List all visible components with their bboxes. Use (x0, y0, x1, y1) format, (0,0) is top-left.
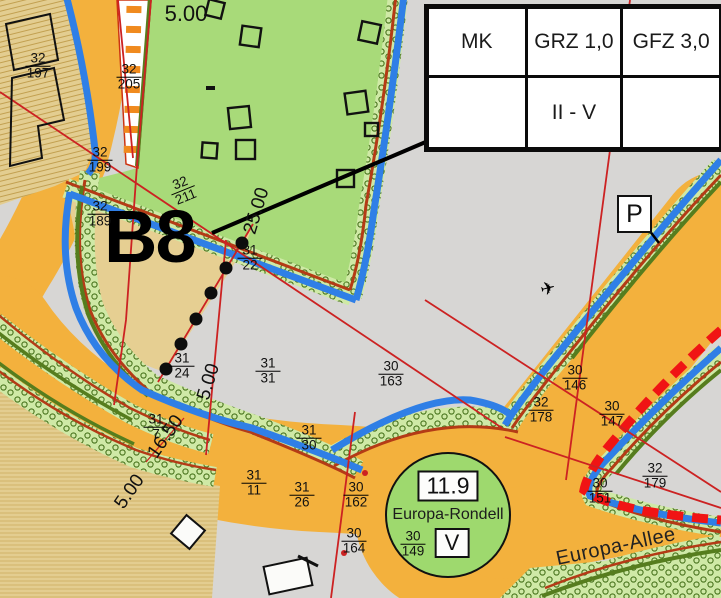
parcel-numerator: 32 (642, 462, 667, 477)
parcel-numerator: 30 (341, 527, 366, 542)
parcel-denominator: 205 (116, 78, 141, 92)
parcel-numerator: 32 (116, 63, 141, 78)
parcel-denominator: 164 (341, 542, 366, 556)
parcel-label: 30151 (587, 477, 612, 506)
aircraft-symbol: ✈ (538, 277, 558, 301)
parcel-label: 30164 (341, 527, 366, 556)
legend-cell-empty2 (623, 78, 719, 147)
parcel-denominator: 149 (400, 545, 425, 559)
parcel-denominator: 31 (255, 372, 280, 386)
parcel-denominator: 162 (343, 496, 368, 510)
parcel-label: 3111 (241, 469, 266, 498)
parcel-denominator: 24 (169, 367, 194, 381)
parcel-numerator: 30 (343, 481, 368, 496)
parcel-label: 3131 (255, 357, 280, 386)
parcel-numerator: 31 (241, 469, 266, 484)
parcel-denominator: 22 (237, 259, 262, 273)
parcel-numerator: 30 (587, 477, 612, 492)
parcel-denominator: 189 (87, 215, 112, 229)
parcel-denominator: 11 (241, 484, 266, 498)
zoning-map[interactable]: MK GRZ 1,0 GFZ 3,0 II - V B8 P ✈ 11.9 Eu… (0, 0, 721, 598)
parcel-label: 32178 (528, 396, 553, 425)
parcel-numerator: 32 (528, 396, 553, 411)
parcel-denominator: 146 (562, 379, 587, 393)
parcel-denominator: 197 (25, 67, 50, 81)
legend-cell-gfz: GFZ 3,0 (623, 9, 719, 78)
label-layer: MK GRZ 1,0 GFZ 3,0 II - V B8 P ✈ 11.9 Eu… (0, 0, 721, 598)
parcel-numerator: 31 (296, 424, 321, 439)
plan-area-label: B8 (104, 200, 195, 274)
parcel-numerator: 32 (87, 146, 112, 161)
parcel-label: 30146 (562, 364, 587, 393)
parcel-label: 3124 (169, 352, 194, 381)
parcel-numerator: 30 (599, 400, 624, 415)
parcel-numerator: 32 (87, 200, 112, 215)
legend-cell-empty1 (429, 78, 528, 147)
parcel-numerator: 31 (289, 481, 314, 496)
parcel-label: 3126 (289, 481, 314, 510)
parcel-denominator: 179 (642, 477, 667, 491)
parcel-numerator: 31 (255, 357, 280, 372)
parcel-label: 3130 (296, 424, 321, 453)
rondell-name: Europa-Rondell (392, 506, 503, 524)
parcel-denominator: 178 (528, 411, 553, 425)
rondell-parcel-label: 30 149 (400, 530, 425, 559)
parcel-denominator: 199 (87, 161, 112, 175)
legend-cell-grz: GRZ 1,0 (528, 9, 624, 78)
parcel-label: 32179 (642, 462, 667, 491)
rondell-height-box: 11.9 (417, 471, 478, 502)
street-label-europa-allee: Europa-Allee (554, 523, 678, 571)
dimension-label: 5.00 (110, 471, 149, 514)
rondell-storeys-box: V (435, 528, 470, 558)
legend-cell-storeys: II - V (528, 78, 624, 147)
parcel-label: 30162 (343, 481, 368, 510)
zoning-legend-table: MK GRZ 1,0 GFZ 3,0 II - V (424, 4, 721, 152)
legend-cell-mk: MK (429, 9, 528, 78)
parcel-numerator: 31 (169, 352, 194, 367)
dimension-label: 25.00 (240, 185, 275, 237)
parcel-label: 30163 (378, 360, 403, 389)
parcel-label: 32199 (87, 146, 112, 175)
parcel-numerator: 30 (400, 530, 425, 545)
parcel-denominator: 151 (587, 492, 612, 506)
dimension-label: 5.00 (165, 1, 208, 27)
parcel-numerator: 30 (378, 360, 403, 375)
parcel-label: 3122 (237, 244, 262, 273)
dimension-label: 5.00 (193, 361, 225, 403)
parcel-label: 32189 (87, 200, 112, 229)
parcel-denominator: 26 (289, 496, 314, 510)
parcel-label: 32197 (25, 52, 50, 81)
parking-symbol-box: P (617, 195, 652, 233)
parcel-numerator: 32 (25, 52, 50, 67)
parcel-denominator: 147 (599, 415, 624, 429)
parcel-label: 30147 (599, 400, 624, 429)
parcel-label: 32205 (116, 63, 141, 92)
parcel-numerator: 30 (562, 364, 587, 379)
parcel-denominator: 30 (296, 439, 321, 453)
parcel-numerator: 31 (237, 244, 262, 259)
parcel-denominator: 163 (378, 375, 403, 389)
